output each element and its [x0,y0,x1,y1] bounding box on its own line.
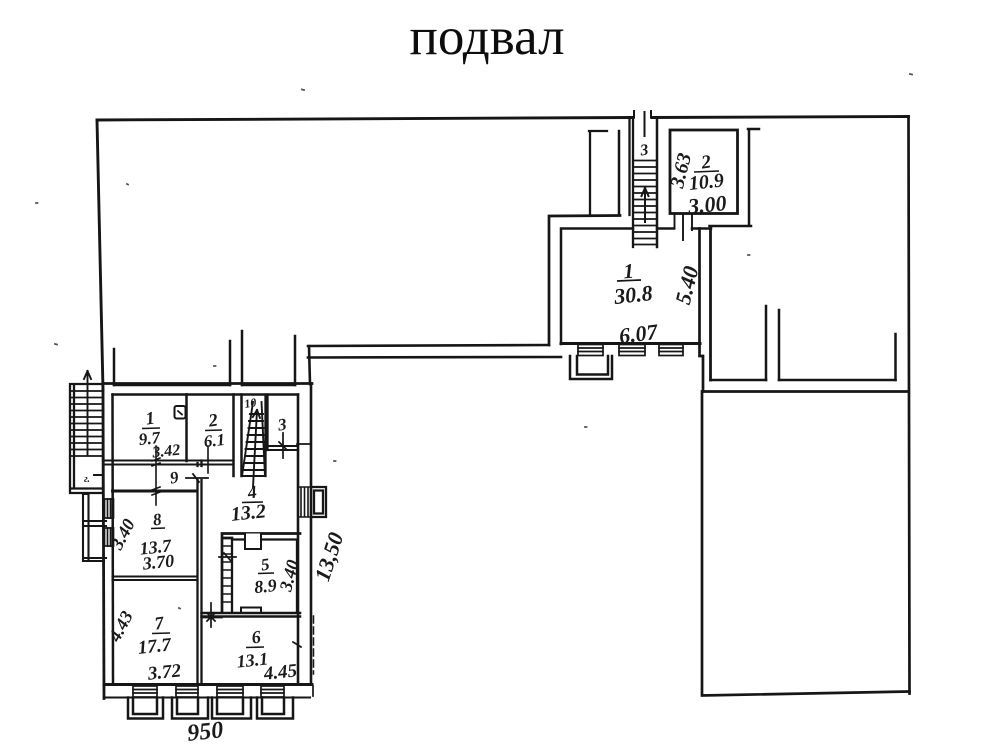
svg-text:950: 950 [186,717,225,747]
svg-text:10: 10 [243,395,257,411]
svg-text:3.70: 3.70 [141,550,175,573]
svg-text:1: 1 [144,408,156,429]
svg-text:4.43: 4.43 [104,608,137,646]
svg-text:4: 4 [245,482,258,503]
svg-text:7: 7 [153,612,166,633]
svg-text:4.45: 4.45 [262,660,299,685]
svg-text:6: 6 [250,627,262,648]
svg-text:3.72: 3.72 [146,660,183,685]
svg-text:13,50: 13,50 [309,529,348,584]
svg-text:3: 3 [276,414,289,434]
svg-text:9: 9 [169,467,181,487]
svg-text:2: 2 [206,410,219,431]
svg-text:13.2: 13.2 [230,500,267,526]
svg-text:подвал: подвал [409,8,564,66]
svg-text:3.40: 3.40 [106,516,139,554]
svg-text:5: 5 [260,554,272,574]
svg-text:6.1: 6.1 [203,430,226,451]
svg-text:3.42: 3.42 [151,442,182,462]
svg-text:30.8: 30.8 [612,280,654,309]
svg-text:3: 3 [638,142,649,160]
svg-text:8: 8 [152,509,164,529]
svg-text:3.00: 3.00 [686,190,728,219]
svg-text:8.9: 8.9 [253,575,277,597]
svg-text:г.: г. [84,474,90,485]
svg-text:6.07: 6.07 [618,319,660,349]
svg-text:17.7: 17.7 [137,634,174,659]
